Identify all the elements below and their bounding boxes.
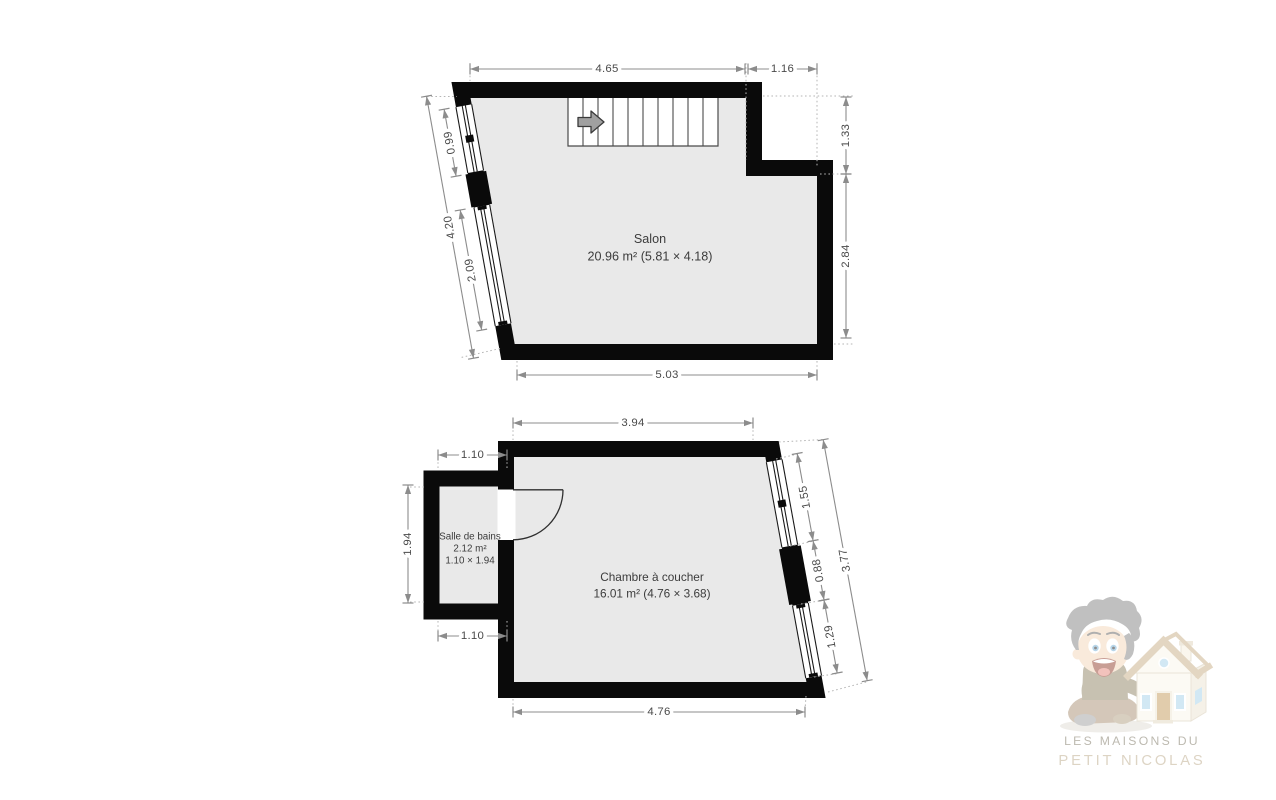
dim-bathroom-bottom: 1.10 (461, 630, 484, 642)
dim-bedroom-right-total: 3.77 (837, 548, 853, 573)
dim-salon-right-upper: 1.33 (840, 124, 852, 147)
bathroom-area-label: 2.12 m² (453, 544, 487, 555)
window-mullion (777, 499, 786, 507)
stairs (568, 98, 718, 146)
dim-bedroom-pier: 0.88 (811, 558, 827, 583)
dim-salon-window-lower: 2.09 (463, 257, 479, 282)
dim-salon-left-total: 4.20 (442, 215, 458, 240)
salon-room-label: Salon (634, 232, 666, 246)
floor-plan-page: Salon 20.96 m² (5.81 × 4.18) 4.65 1.16 1… (0, 0, 1276, 800)
bathroom-size-label: 1.10 × 1.94 (445, 556, 495, 567)
dim-bedroom-window-upper: 1.55 (797, 485, 813, 510)
dim-salon-top-right: 1.16 (771, 63, 794, 75)
dim-salon-window-upper: 0.99 (442, 130, 458, 155)
salon-floor-plan: Salon 20.96 m² (5.81 × 4.18) 4.65 1.16 1… (427, 63, 854, 381)
window-mullion (465, 135, 474, 143)
watermark-house-icon (1128, 634, 1209, 724)
bedroom-floor-plan: Chambre à coucher 16.01 m² (4.76 × 3.68)… (402, 417, 868, 718)
dim-salon-right-lower: 2.84 (840, 244, 852, 267)
dim-bedroom-bottom: 4.76 (647, 706, 670, 718)
watermark-logo: LES MAISONS DU PETIT NICOLAS (1058, 597, 1209, 769)
bedroom-room-label: Chambre à coucher (600, 570, 704, 584)
salon-area-label: 20.96 m² (5.81 × 4.18) (588, 250, 713, 264)
dim-bathroom-top: 1.10 (461, 449, 484, 461)
dim-salon-bottom: 5.03 (655, 369, 678, 381)
watermark-text-line1: LES MAISONS DU (1064, 734, 1200, 748)
dim-bathroom-left: 1.94 (402, 532, 414, 555)
bedroom-area-label: 16.01 m² (4.76 × 3.68) (593, 587, 710, 601)
watermark-text-line2: PETIT NICOLAS (1058, 753, 1205, 769)
dim-bedroom-window-lower: 1.29 (823, 624, 839, 649)
bathroom-room-label: Salle de bains (439, 532, 501, 543)
dim-bedroom-top: 3.94 (621, 417, 644, 429)
floor-plan-canvas: Salon 20.96 m² (5.81 × 4.18) 4.65 1.16 1… (0, 0, 1276, 800)
dim-salon-top: 4.65 (595, 63, 618, 75)
